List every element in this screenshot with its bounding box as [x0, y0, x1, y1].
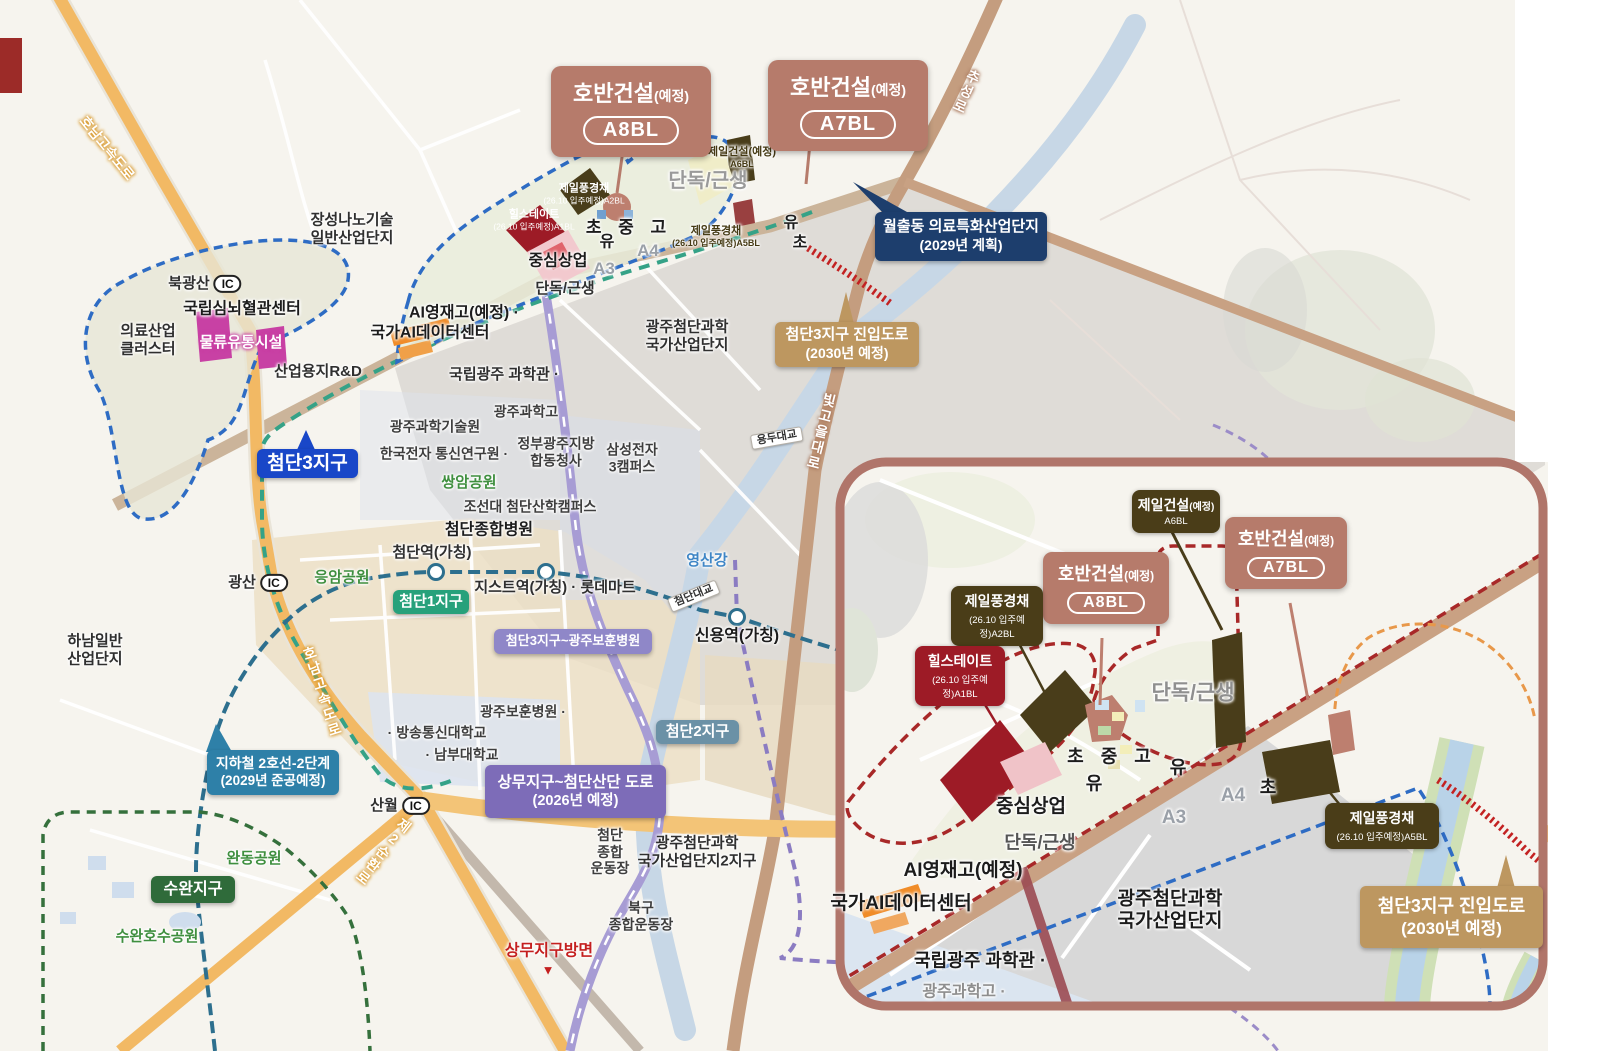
- inset-map: [826, 462, 1552, 1006]
- map-edge-fade: [1515, 0, 1600, 462]
- redevelopment-map: 장성나노기술일반산업단지북광산IC국립심뇌혈관센터의료산업클러스터물류유통시설산…: [0, 0, 1600, 1051]
- map-canvas: [0, 0, 1600, 1051]
- map-edge-fade-2: [1548, 462, 1600, 1051]
